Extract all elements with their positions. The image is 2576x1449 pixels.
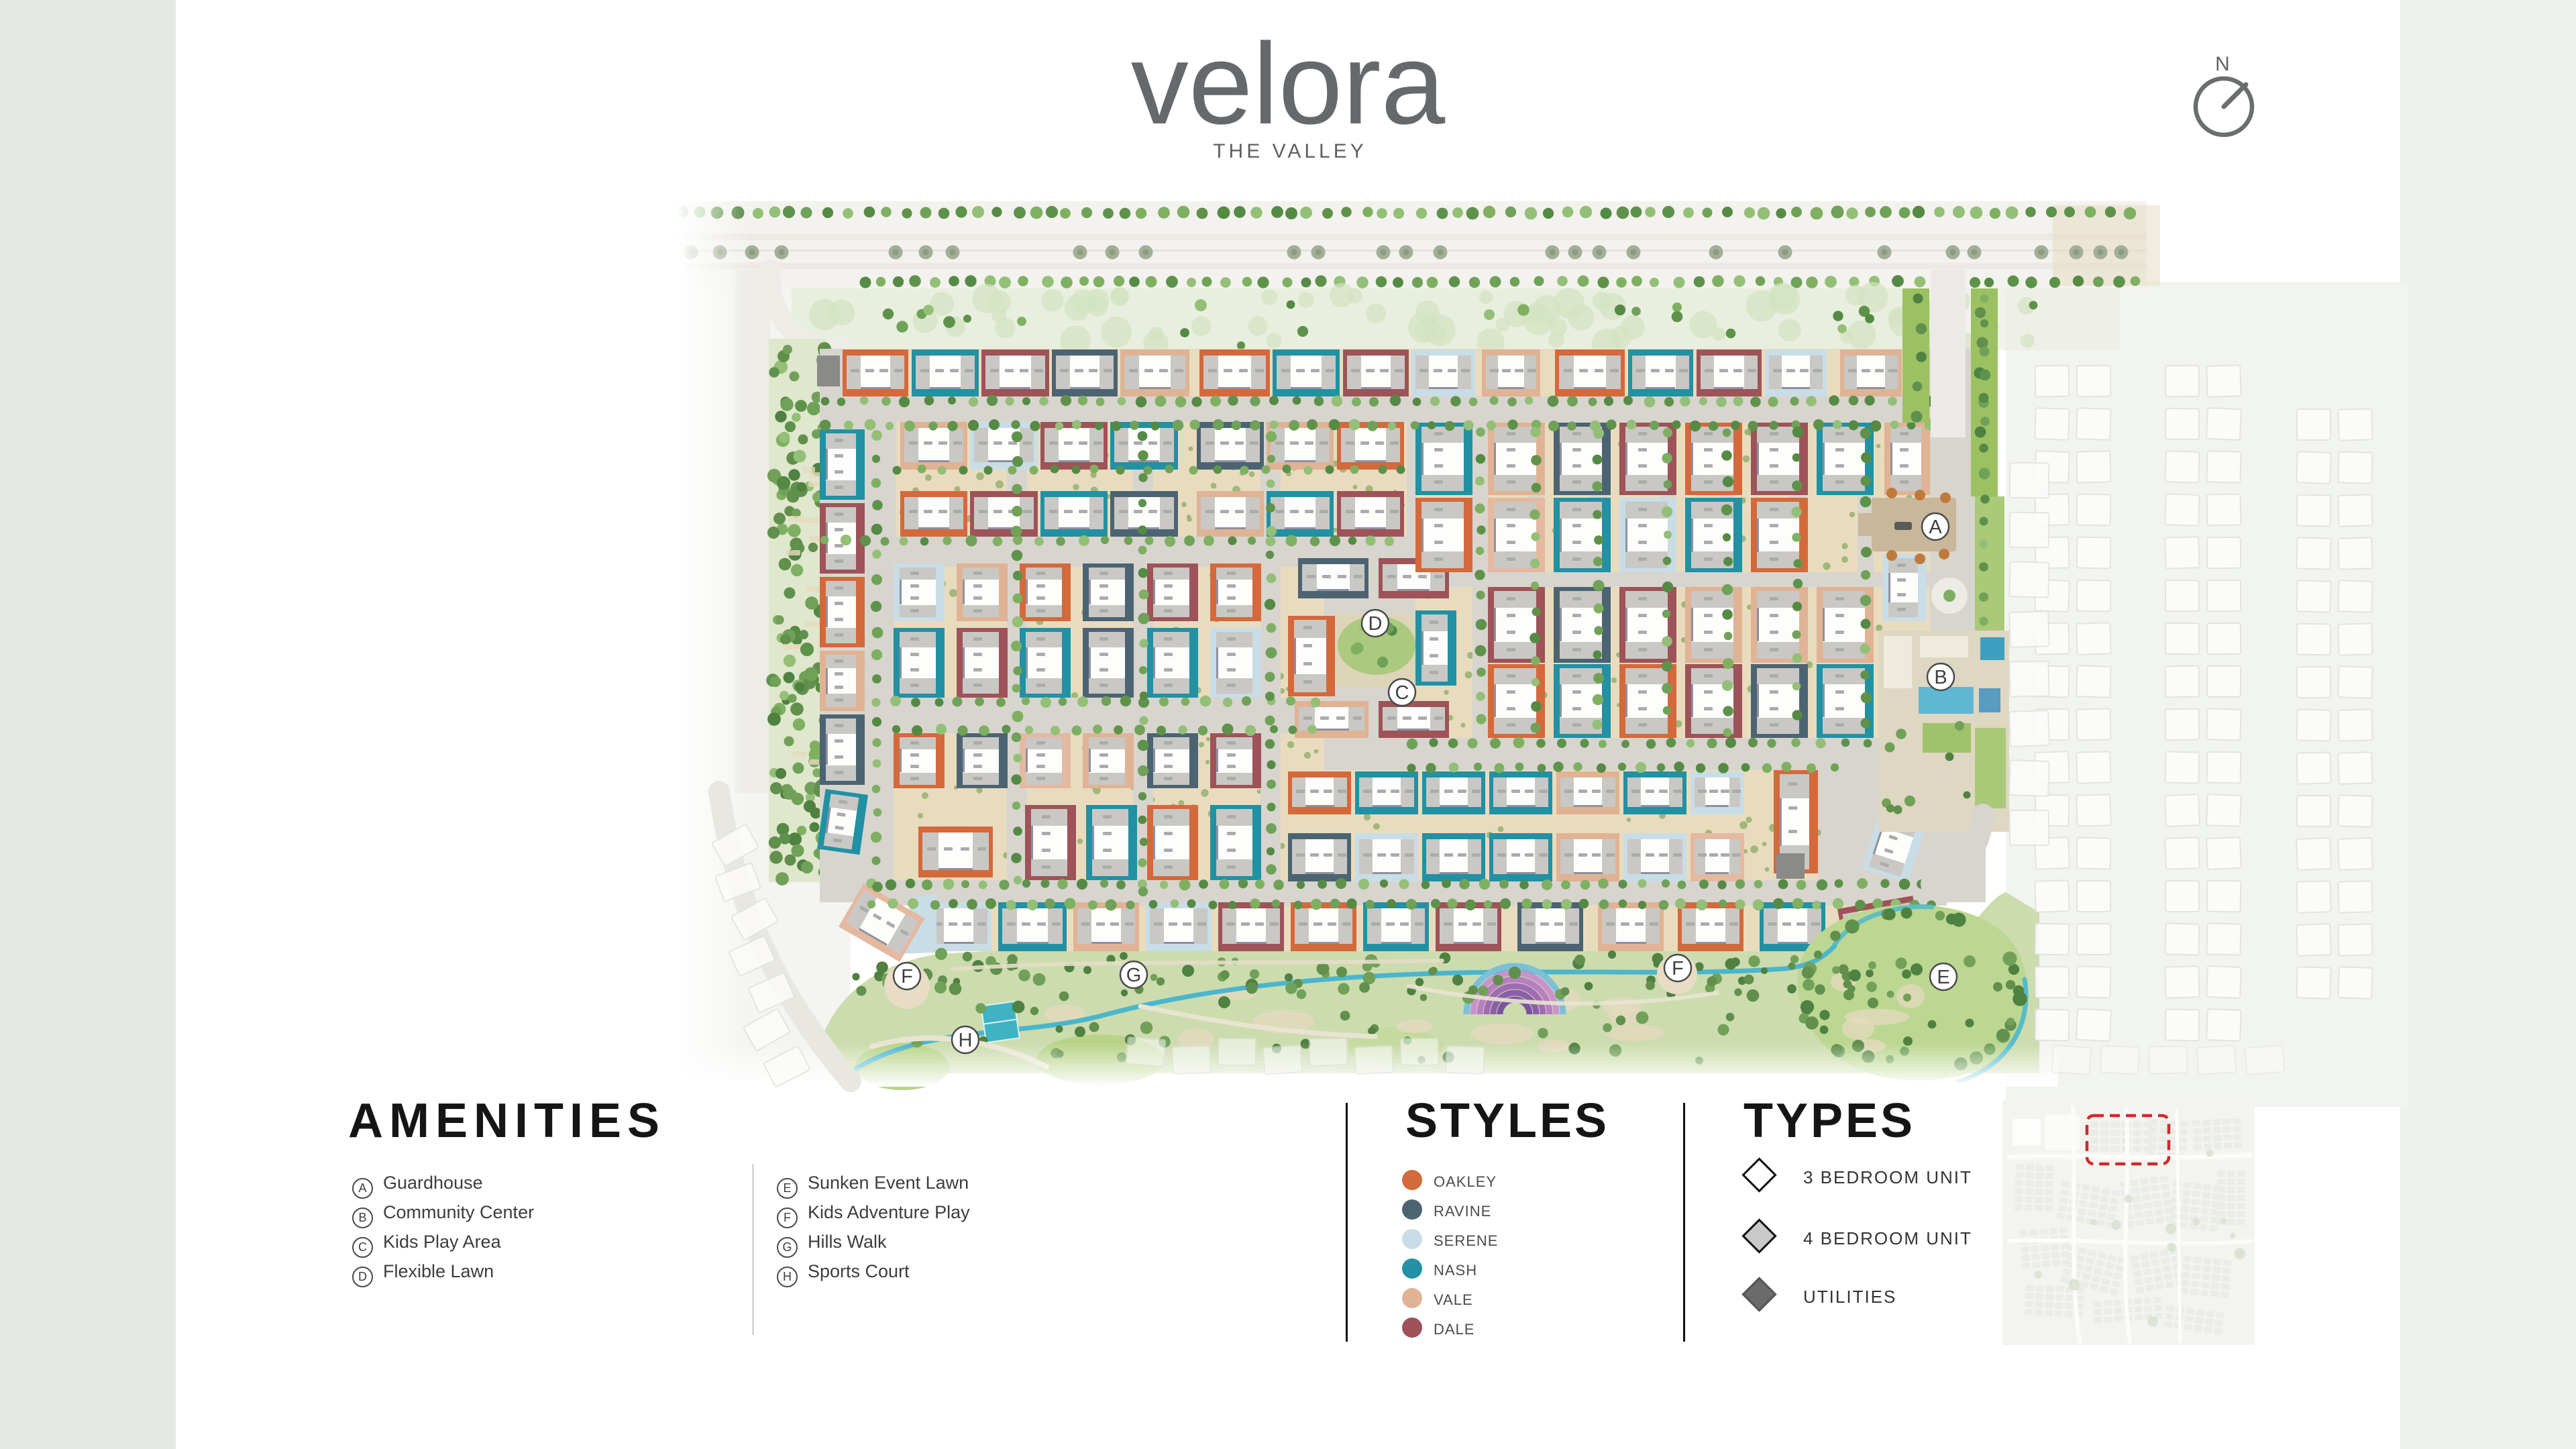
svg-text:N: N bbox=[2215, 53, 2230, 75]
svg-text:A: A bbox=[1929, 517, 1942, 538]
svg-text:B: B bbox=[1934, 667, 1947, 688]
svg-text:C: C bbox=[1395, 682, 1409, 704]
svg-text:F: F bbox=[901, 966, 913, 987]
svg-text:H: H bbox=[959, 1030, 973, 1051]
svg-text:D: D bbox=[1368, 613, 1383, 635]
svg-text:G: G bbox=[1126, 965, 1142, 986]
svg-text:E: E bbox=[1937, 967, 1949, 988]
svg-text:F: F bbox=[1672, 958, 1684, 979]
